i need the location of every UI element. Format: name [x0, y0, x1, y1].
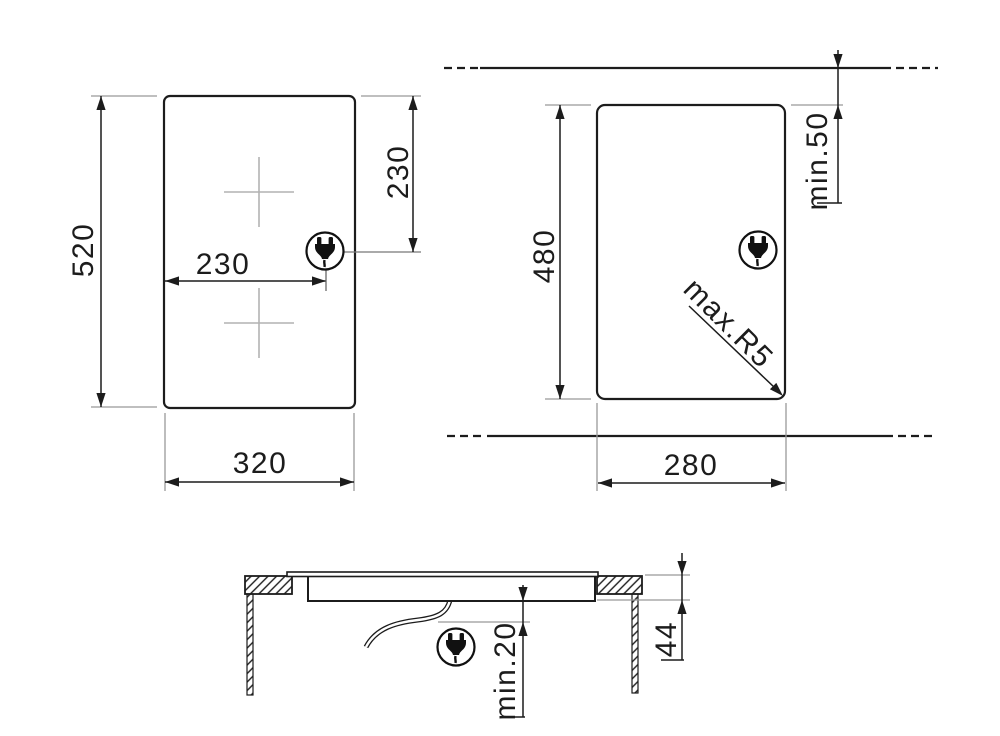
dimension-hob-height-520	[91, 96, 157, 407]
cabinet-wall-left	[247, 594, 253, 695]
hob-top-view	[91, 96, 421, 491]
power-plug-icon-top-view	[307, 233, 344, 270]
worktop-section-right	[597, 576, 642, 594]
worktop-section-left	[245, 576, 292, 594]
installation-drawing: 520 230 230 320 480 min.50 max.R5 280 mi…	[0, 0, 1000, 736]
power-plug-icon-cutout-view	[740, 232, 777, 269]
dim-label-hob-width: 320	[233, 449, 288, 479]
supply-cable	[366, 600, 450, 647]
dim-label-bottom-clearance: min.20	[491, 621, 521, 720]
dim-label-hob-height: 520	[69, 223, 99, 278]
dim-label-build-in-depth: 44	[652, 621, 682, 657]
dim-label-cutout-width: 280	[664, 451, 719, 481]
dim-label-plug-offset-x: 230	[196, 250, 251, 280]
dim-label-cutout-height: 480	[530, 229, 560, 284]
hob-body-section	[308, 576, 595, 601]
hob-glass-section	[287, 572, 598, 577]
worktop-cutout-view	[444, 50, 938, 491]
power-plug-icon-section-view	[438, 629, 475, 666]
cabinet-wall-right	[632, 594, 638, 693]
dim-label-plug-offset-y: 230	[384, 145, 414, 200]
dim-label-edge-clearance: min.50	[803, 111, 833, 210]
